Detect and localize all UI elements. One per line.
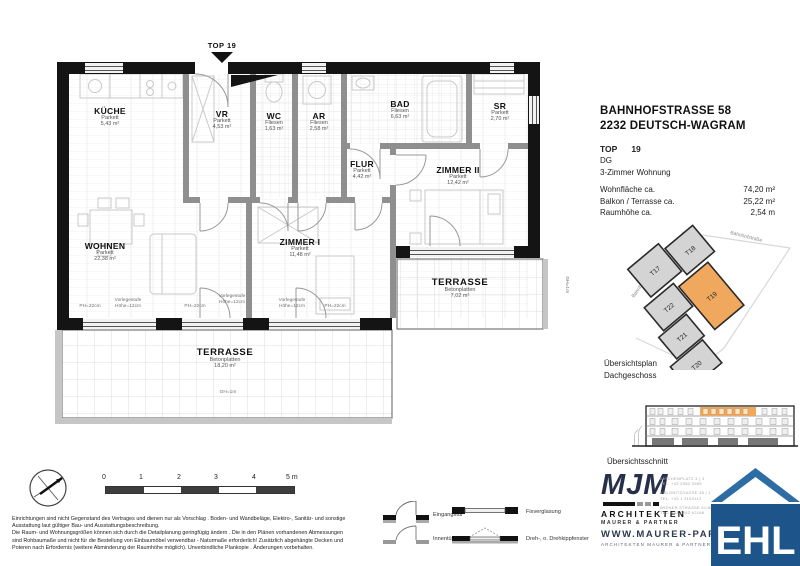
parapet-height-note: PH=22cm [184, 304, 205, 310]
parapet-height-note: PH=22cm [324, 304, 345, 310]
address-line2: 2232 DEUTSCH-WAGRAM [600, 119, 746, 134]
entrance-arrow-icon [211, 52, 233, 63]
disclaimer-line: Einrichtungen sind nicht Gegenstand des … [12, 516, 374, 523]
window-symbol-icon [452, 526, 518, 544]
railing-height-note: GH=1m [563, 276, 569, 293]
unit-meta: TOP19 DG 3-Zimmer Wohnung [600, 143, 671, 179]
step-note: Vorlegestufe Höhe=12cm [273, 298, 311, 309]
unit-id: TOP19 [600, 143, 671, 155]
fixed-glazing-symbol-icon [452, 505, 518, 517]
disclaimer-line: Die Raum- und Wohnungsgrößen können sich… [12, 530, 374, 537]
disclaimer: Einrichtungen sind nicht Gegenstand des … [12, 516, 374, 552]
project-address: BAHNHOFSTRASSE 58 2232 DEUTSCH-WAGRAM [600, 104, 746, 134]
area-value: 2,54 m [751, 207, 775, 219]
area-row: Wohnfläche ca. 74,20 m² [600, 184, 775, 196]
scale-end-label: 5 m [286, 474, 298, 481]
parapet-height-note: PH=22cm [79, 304, 100, 310]
area-label: Balkon / Terrasse ca. [600, 196, 675, 208]
area-value: 74,20 m² [743, 184, 775, 196]
caption-line1: Übersichtsplan [604, 358, 657, 370]
site-plan: Bahnhofstraße Bahnhofstraße T17 T18 T22 … [612, 220, 800, 370]
architect-website-subline: ARCHITEKTEN MAURER & PARTNER ZT G [601, 542, 728, 547]
scale-bar [105, 486, 295, 494]
top-unit-marker: TOP 19 [208, 41, 237, 50]
unit-floor: DG [600, 155, 671, 167]
building-section [630, 402, 800, 454]
scale-tick: 1 [139, 474, 143, 481]
disclaimer-line: Ausstattung laut gültiger Bau- und Ausst… [12, 523, 374, 530]
legend-label-interior-door: Innentür [433, 536, 454, 542]
railing-height-note: GH=1m [220, 390, 237, 396]
interior-door-symbol-icon [383, 525, 429, 547]
floor-plan: TOP 19 KÜCHE Parkett 5,43 m² VR Parkett … [10, 40, 580, 440]
area-row: Balkon / Terrasse ca. 25,22 m² [600, 196, 775, 208]
scale-tick: 0 [102, 474, 106, 481]
entrance-door-symbol-icon [383, 501, 429, 523]
ehl-logo-text: EHL [716, 519, 796, 563]
area-label: Raumhöhe ca. [600, 207, 652, 219]
legend-label-fixed-glazing: Fixverglasung [526, 509, 561, 515]
caption-line2: Dachgeschoss [604, 370, 657, 382]
disclaimer-line: Poteren nach Erfordernis (weitere Abmind… [12, 545, 374, 552]
area-value: 25,22 m² [743, 196, 775, 208]
unit-type: 3-Zimmer Wohnung [600, 167, 671, 179]
scale-tick: 3 [214, 474, 218, 481]
compass-icon [26, 466, 70, 510]
section-caption: Übersichtsschnitt [607, 456, 668, 468]
address-line1: BAHNHOFSTRASSE 58 [600, 104, 746, 119]
area-row: Raumhöhe ca. 2,54 m [600, 207, 775, 219]
scale-tick: 4 [252, 474, 256, 481]
floor-plan-drawing [10, 40, 580, 440]
legend-label-window: Dreh-, o. Drehkippfenster [526, 536, 589, 542]
unit-label: TOP [600, 144, 617, 154]
unit-number: 19 [631, 144, 640, 154]
step-note: Vorlegestufe Höhe=12cm [213, 294, 251, 305]
area-table: Wohnfläche ca. 74,20 m² Balkon / Terrass… [600, 184, 775, 219]
scale-tick: 2 [177, 474, 181, 481]
step-note: Vorlegestufe Höhe=12cm [109, 298, 147, 309]
disclaimer-line: sind Rohbaumaße und nicht für die Bestel… [12, 538, 374, 545]
ehl-logo: EHL [711, 466, 800, 566]
site-plan-caption: Übersichtsplan Dachgeschoss [604, 358, 657, 383]
area-label: Wohnfläche ca. [600, 184, 655, 196]
